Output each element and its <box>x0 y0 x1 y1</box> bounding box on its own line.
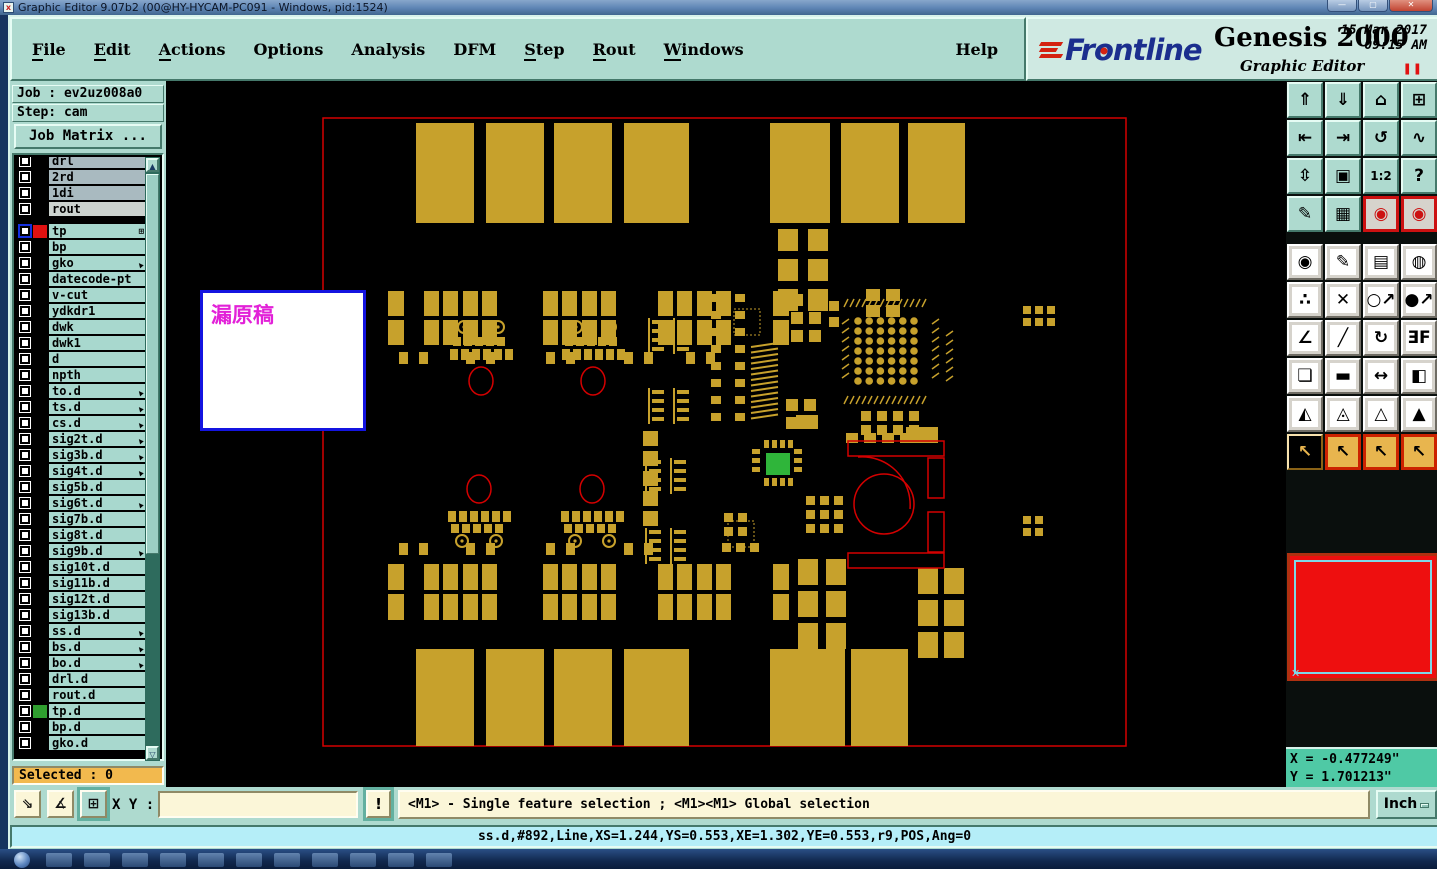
layer-visibility-checkbox[interactable] <box>20 658 30 668</box>
layer-color-swatch[interactable] <box>33 241 47 254</box>
layer-name[interactable]: sig2t.d▲ <box>49 432 147 447</box>
job-panel: Job : ev2uz008a0 Step: cam Job Matrix ..… <box>10 81 166 787</box>
layer-row-ydkdr1[interactable]: ydkdr1 <box>16 303 147 319</box>
select-frame-button[interactable]: ↖ <box>1325 434 1361 470</box>
layer-name[interactable]: ts.d▲ <box>49 400 147 415</box>
mirror-feature-button[interactable]: ƎF <box>1401 320 1437 356</box>
layer-visibility-checkbox[interactable] <box>20 354 30 364</box>
overview-window[interactable]: ✕ <box>1287 553 1437 681</box>
layer-name[interactable]: sig9b.d▲ <box>49 544 147 559</box>
layer-name[interactable]: dwk <box>49 320 147 335</box>
split-window-xy-button[interactable]: ⊞ <box>1401 82 1437 118</box>
resize-window-button[interactable]: ⇘ <box>14 790 41 818</box>
layer-row-sig12t.d[interactable]: sig12t.d <box>16 591 147 607</box>
layer-visibility-checkbox[interactable] <box>20 722 30 732</box>
layer-color-swatch[interactable] <box>33 529 47 542</box>
layer-row-dwk[interactable]: dwk <box>16 319 147 335</box>
selected-count: Selected : 0 <box>12 766 164 785</box>
zoom-out-button[interactable]: ⇓ <box>1325 82 1361 118</box>
layer-row-ts.d[interactable]: ts.d▲ <box>16 399 147 415</box>
brand-panel: Frontline Genesis 2000 Graphic Editor 15… <box>1026 17 1437 81</box>
select-single-button[interactable]: ↖ <box>1287 434 1323 470</box>
select-dashed-icon: ◍ <box>1406 249 1432 275</box>
measure-ruler-icon: ▤ <box>1368 249 1394 275</box>
scroll-up-icon[interactable]: ▲ <box>146 158 159 172</box>
layer-visibility-checkbox[interactable] <box>20 466 30 476</box>
layer-visibility-checkbox[interactable] <box>20 322 30 332</box>
mirror-feature-icon: ƎF <box>1406 325 1432 351</box>
layer-row-gko.d[interactable]: gko.d <box>16 735 147 751</box>
arc-mode-1-button[interactable]: ◭ <box>1287 396 1323 432</box>
command-bar: ⇘∡⊞ X Y : ! <M1> - Single feature select… <box>10 787 1437 823</box>
layer-row-2rd[interactable]: 2rd <box>16 169 147 185</box>
scale-1-2-button[interactable]: 1:2 <box>1363 158 1399 194</box>
option-menu-icon <box>1420 803 1429 808</box>
datetime-display: 15 Mar 201709:15 AM <box>1341 23 1427 53</box>
layer-color-swatch[interactable] <box>33 369 47 382</box>
layer-visibility-checkbox[interactable] <box>20 562 30 572</box>
layer-visibility-checkbox[interactable] <box>20 370 30 380</box>
layer-name[interactable]: npth <box>49 368 147 383</box>
layer-color-swatch[interactable] <box>33 433 47 446</box>
netlist-compare-b-button[interactable]: ◉ <box>1401 196 1437 232</box>
layer-color-swatch[interactable] <box>33 401 47 414</box>
layer-name[interactable]: tp⊞ <box>49 224 147 239</box>
layer-color-swatch[interactable] <box>33 157 47 168</box>
layer-color-swatch[interactable] <box>33 481 47 494</box>
layer-row-sig8t.d[interactable]: sig8t.d <box>16 527 147 543</box>
layer-row-sig3b.d[interactable]: sig3b.d▲ <box>16 447 147 463</box>
menu-edit[interactable]: Edit <box>94 40 131 59</box>
arc-mode-4-icon: ▲ <box>1406 401 1432 427</box>
layer-color-swatch[interactable] <box>33 449 47 462</box>
layer-visibility-checkbox[interactable] <box>20 706 30 716</box>
layer-visibility-checkbox[interactable] <box>20 226 30 236</box>
layer-name[interactable]: sig13b.d <box>49 608 147 623</box>
layer-name[interactable]: gko.d <box>49 736 147 751</box>
slope-line-button[interactable]: ╱ <box>1325 320 1361 356</box>
taskbar-app-icon[interactable] <box>274 853 300 867</box>
arc-mode-2-icon: ◬ <box>1330 401 1356 427</box>
menu-step[interactable]: Step <box>524 40 564 59</box>
layer-name[interactable]: rout <box>49 202 147 217</box>
scroll-thumb[interactable] <box>146 174 159 554</box>
close-button[interactable]: ✕ <box>1389 0 1433 12</box>
layer-color-swatch[interactable] <box>33 609 47 622</box>
taskbar-app-icon[interactable] <box>160 853 186 867</box>
layer-name[interactable]: drl.d <box>49 672 147 687</box>
zoom-in-button[interactable]: ⇑ <box>1287 82 1323 118</box>
overview-cursor-icon: ✕ <box>1291 667 1300 680</box>
layer-grid-marker-icon: ⊞ <box>139 225 144 239</box>
layer-name[interactable]: bp.d <box>49 720 147 735</box>
layer-name[interactable]: gko▲ <box>49 256 147 271</box>
arc-mode-3-button[interactable]: △ <box>1363 396 1399 432</box>
note-box: 漏原稿 <box>200 290 366 431</box>
copy-to-layer-icon: ❏ <box>1292 363 1318 389</box>
rotate-feature-button[interactable]: ↻ <box>1363 320 1399 356</box>
angle-measure-button[interactable]: ∠ <box>1287 320 1323 356</box>
menu-file[interactable]: File <box>32 40 66 59</box>
layer-name[interactable]: drl <box>49 157 147 169</box>
layer-color-swatch[interactable] <box>33 737 47 750</box>
layer-color-swatch[interactable] <box>33 641 47 654</box>
brand-name: Frontline <box>1065 33 1202 67</box>
pan-right-button[interactable]: ⇥ <box>1325 120 1361 156</box>
slope-line-icon: ╱ <box>1330 325 1356 351</box>
job-name: Job : ev2uz008a0 <box>12 85 164 103</box>
windows-taskbar[interactable] <box>0 849 1437 869</box>
arc-mode-1-icon: ◭ <box>1292 401 1318 427</box>
feature-status-text: ss.d,#892,Line,XS=1.244,YS=0.553,XE=1.30… <box>478 829 971 844</box>
menu-rout[interactable]: Rout <box>593 40 636 59</box>
layer-name[interactable]: bs.d▲ <box>49 640 147 655</box>
coordinate-readout: X = -0.477249" Y = 1.701213" <box>1286 747 1437 787</box>
overview-frame <box>1294 560 1432 674</box>
layer-visibility-checkbox[interactable] <box>20 594 30 604</box>
swap-small-button[interactable]: ○↗ <box>1363 282 1399 318</box>
pause-indicator-icon: ❚❚ <box>1403 62 1423 75</box>
help-context-button[interactable]: ? <box>1401 158 1437 194</box>
minimize-button[interactable]: — <box>1327 0 1357 12</box>
layer-row-sig7b.d[interactable]: sig7b.d <box>16 511 147 527</box>
layer-name[interactable]: tp.d <box>49 704 147 719</box>
layer-row-dwk1[interactable]: dwk1 <box>16 335 147 351</box>
delete-feature-button[interactable]: ✕ <box>1325 282 1361 318</box>
taskbar-app-icon[interactable] <box>84 853 110 867</box>
angle-measure-icon: ∠ <box>1292 325 1318 351</box>
readout-y: Y = 1.701213" <box>1290 769 1437 787</box>
pan-left-button[interactable]: ⇤ <box>1287 120 1323 156</box>
layer-color-swatch[interactable] <box>33 561 47 574</box>
job-matrix-button[interactable]: Job Matrix ... <box>14 124 162 149</box>
layer-visibility-checkbox[interactable] <box>20 450 30 460</box>
layer-row-1di[interactable]: 1di <box>16 185 147 201</box>
layer-name[interactable]: sig6t.d▲ <box>49 496 147 511</box>
previous-view-button[interactable]: ↺ <box>1363 120 1399 156</box>
reshape-feature-icon: ✎ <box>1330 249 1356 275</box>
layer-visibility-checkbox[interactable] <box>20 626 30 636</box>
rotate-feature-icon: ↻ <box>1368 325 1394 351</box>
readout-x: X = -0.477249" <box>1290 751 1437 769</box>
layer-row-bs.d[interactable]: bs.d▲ <box>16 639 147 655</box>
taskbar-app-icon[interactable] <box>198 853 224 867</box>
swap-large-button[interactable]: ●↗ <box>1401 282 1437 318</box>
layer-color-swatch[interactable] <box>33 225 47 238</box>
status-bar: ss.d,#892,Line,XS=1.244,YS=0.553,XE=1.30… <box>10 825 1437 848</box>
toolbar-panel: ⇑⇓⌂⊞⇤⇥↺∿⇳▣1:2?✎▦◉◉◉✎▤◍∴✕○↗●↗∠╱↻ƎF❏▬↔◧◭◬△… <box>1286 81 1437 787</box>
line-segment-icon: ▬ <box>1330 363 1356 389</box>
layer-color-swatch[interactable] <box>33 513 47 526</box>
select-net-button[interactable]: ↖ <box>1401 434 1437 470</box>
layer-visibility-checkbox[interactable] <box>20 338 30 348</box>
taskbar-app-icon[interactable] <box>350 853 376 867</box>
resize-horizontal-button[interactable]: ↔ <box>1363 358 1399 394</box>
xy-label: X Y : <box>112 797 154 813</box>
layer-color-swatch[interactable] <box>33 721 47 734</box>
layer-name[interactable]: cs.d▲ <box>49 416 147 431</box>
shapes-boolean-icon: ◧ <box>1406 363 1432 389</box>
layer-name[interactable]: v-cut <box>49 288 147 303</box>
layer-row-rout.d[interactable]: rout.d <box>16 687 147 703</box>
netlist-compare-a-button[interactable]: ◉ <box>1363 196 1399 232</box>
layer-visibility-checkbox[interactable] <box>20 204 30 214</box>
shapes-boolean-button[interactable]: ◧ <box>1401 358 1437 394</box>
layer-name[interactable]: sig7b.d <box>49 512 147 527</box>
layer-visibility-checkbox[interactable] <box>20 610 30 620</box>
units-dropdown[interactable]: Inch <box>1376 790 1437 819</box>
layer-color-swatch[interactable] <box>33 497 47 510</box>
grid-snap-button[interactable]: ⊞ <box>80 790 107 818</box>
layer-name[interactable]: sig4t.d▲ <box>49 464 147 479</box>
net-endpoints-button[interactable]: ∴ <box>1287 282 1323 318</box>
layer-row-to.d[interactable]: to.d▲ <box>16 383 147 399</box>
taskbar-app-icon[interactable] <box>46 853 72 867</box>
layer-name[interactable]: ss.d▲ <box>49 624 147 639</box>
menu-actions[interactable]: Actions <box>159 40 226 59</box>
maximize-button[interactable]: ▢ <box>1358 0 1388 12</box>
layer-visibility-checkbox[interactable] <box>20 498 30 508</box>
resize-horizontal-icon: ↔ <box>1368 363 1394 389</box>
alert-button[interactable]: ! <box>366 790 391 818</box>
layer-name[interactable]: sig10t.d <box>49 560 147 575</box>
layer-color-swatch[interactable] <box>33 187 47 200</box>
layer-name[interactable]: 1di <box>49 186 147 201</box>
layer-color-swatch[interactable] <box>33 305 47 318</box>
move-feature-icon: ◉ <box>1292 249 1318 275</box>
layer-color-swatch[interactable] <box>33 417 47 430</box>
layer-color-swatch[interactable] <box>33 321 47 334</box>
layer-visibility-checkbox[interactable] <box>20 578 30 588</box>
home-view-button[interactable]: ⌂ <box>1363 82 1399 118</box>
select-dashed-button[interactable]: ◍ <box>1401 244 1437 280</box>
menu-analysis[interactable]: Analysis <box>351 40 425 59</box>
copy-to-layer-button[interactable]: ❏ <box>1287 358 1323 394</box>
menu-windows[interactable]: Windows <box>664 40 744 59</box>
product-subtitle: Graphic Editor <box>1240 57 1364 75</box>
layer-visibility-checkbox[interactable] <box>20 434 30 444</box>
layer-row-drl[interactable]: drl <box>16 157 147 169</box>
layer-color-swatch[interactable] <box>33 673 47 686</box>
taskbar-app-icon[interactable] <box>236 853 262 867</box>
layer-row-tp.d[interactable]: tp.d <box>16 703 147 719</box>
delete-feature-icon: ✕ <box>1330 287 1356 313</box>
layer-name[interactable]: to.d▲ <box>49 384 147 399</box>
logo-stripes-icon <box>1040 40 1062 60</box>
layer-visibility-checkbox[interactable] <box>20 258 30 268</box>
note-text: 漏原稿 <box>211 303 274 327</box>
layer-row-sig9b.d[interactable]: sig9b.d▲ <box>16 543 147 559</box>
layer-visibility-checkbox[interactable] <box>20 172 30 182</box>
layer-visibility-checkbox[interactable] <box>20 674 30 684</box>
layer-name[interactable]: sig11b.d <box>49 576 147 591</box>
layer-name[interactable]: sig5b.d <box>49 480 147 495</box>
layer-visibility-checkbox[interactable] <box>20 157 30 166</box>
taskbar-app-icon[interactable] <box>122 853 148 867</box>
select-polygon-button[interactable]: ↖ <box>1363 434 1399 470</box>
hint-message: <M1> - Single feature selection ; <M1><M… <box>398 790 1370 819</box>
layer-visibility-checkbox[interactable] <box>20 306 30 316</box>
start-orb-icon[interactable] <box>14 852 30 868</box>
layer-row-gko[interactable]: gko▲ <box>16 255 147 271</box>
layer-color-swatch[interactable] <box>33 657 47 670</box>
layer-visibility-checkbox[interactable] <box>20 690 30 700</box>
layer-visibility-checkbox[interactable] <box>20 290 30 300</box>
taskbar-app-icon[interactable] <box>388 853 414 867</box>
layer-color-swatch[interactable] <box>33 577 47 590</box>
arc-mode-4-button[interactable]: ▲ <box>1401 396 1437 432</box>
xy-input[interactable] <box>158 791 358 818</box>
layer-color-swatch[interactable] <box>33 273 47 286</box>
layer-row-v-cut[interactable]: v-cut <box>16 287 147 303</box>
layer-visibility-checkbox[interactable] <box>20 738 30 748</box>
zoom-fit-button[interactable]: ⇳ <box>1287 158 1323 194</box>
menu-options[interactable]: Options <box>254 40 324 59</box>
layer-row-sig11b.d[interactable]: sig11b.d <box>16 575 147 591</box>
serpentine-redraw-button[interactable]: ∿ <box>1401 120 1437 156</box>
net-endpoints-icon: ∴ <box>1292 287 1318 313</box>
layer-visibility-checkbox[interactable] <box>20 274 30 284</box>
zoom-center-button[interactable]: ▣ <box>1325 158 1361 194</box>
layer-name[interactable]: datecode-pt <box>49 272 147 287</box>
layer-row-sig5b.d[interactable]: sig5b.d <box>16 479 147 495</box>
menu-bar: FileEditActionsOptionsAnalysisDFMStepRou… <box>10 17 1026 81</box>
layer-row-bp[interactable]: bp <box>16 239 147 255</box>
layer-row-bo.d[interactable]: bo.d▲ <box>16 655 147 671</box>
window-titlebar: x Graphic Editor 9.07b2 (00@HY-HYCAM-PC0… <box>0 0 1437 15</box>
layer-row-bp.d[interactable]: bp.d <box>16 719 147 735</box>
layer-row-drl.d[interactable]: drl.d <box>16 671 147 687</box>
layer-name[interactable]: sig12t.d <box>49 592 147 607</box>
arc-mode-3-icon: △ <box>1368 401 1394 427</box>
layer-visibility-checkbox[interactable] <box>20 402 30 412</box>
layer-row-ss.d[interactable]: ss.d▲ <box>16 623 147 639</box>
layer-color-swatch[interactable] <box>33 705 47 718</box>
layer-row-sig6t.d[interactable]: sig6t.d▲ <box>16 495 147 511</box>
layer-color-swatch[interactable] <box>33 203 47 216</box>
layer-visibility-checkbox[interactable] <box>20 482 30 492</box>
layer-visibility-checkbox[interactable] <box>20 418 30 428</box>
layer-color-swatch[interactable] <box>33 545 47 558</box>
layer-visibility-checkbox[interactable] <box>20 386 30 396</box>
move-feature-button[interactable]: ◉ <box>1287 244 1323 280</box>
reshape-feature-button[interactable]: ✎ <box>1325 244 1361 280</box>
layer-color-swatch[interactable] <box>33 337 47 350</box>
setup-tools-button[interactable]: ✎ <box>1287 196 1323 232</box>
layer-row-tp[interactable]: tp⊞ <box>16 223 147 239</box>
layer-row-sig2t.d[interactable]: sig2t.d▲ <box>16 431 147 447</box>
layer-scrollbar[interactable]: ▲ ▽ <box>145 157 160 761</box>
layer-color-swatch[interactable] <box>33 289 47 302</box>
layer-color-swatch[interactable] <box>33 625 47 638</box>
swap-small-icon: ○↗ <box>1368 287 1394 313</box>
layer-color-swatch[interactable] <box>33 171 47 184</box>
layer-name[interactable]: bp <box>49 240 147 255</box>
layer-row-rout[interactable]: rout <box>16 201 147 217</box>
swap-large-icon: ●↗ <box>1406 287 1432 313</box>
layer-color-swatch[interactable] <box>33 465 47 478</box>
layer-color-swatch[interactable] <box>33 353 47 366</box>
layer-name[interactable]: bo.d▲ <box>49 656 147 671</box>
application-window: FileEditActionsOptionsAnalysisDFMStepRou… <box>8 15 1437 849</box>
layer-color-swatch[interactable] <box>33 257 47 270</box>
layer-visibility-checkbox[interactable] <box>20 188 30 198</box>
layer-row-cs.d[interactable]: cs.d▲ <box>16 415 147 431</box>
menu-dfm[interactable]: DFM <box>453 40 496 59</box>
layer-name[interactable]: rout.d <box>49 688 147 703</box>
layer-visibility-checkbox[interactable] <box>20 642 30 652</box>
layer-row-npth[interactable]: npth <box>16 367 147 383</box>
taskbar-app-icon[interactable] <box>312 853 338 867</box>
pcb-canvas[interactable]: 漏原稿 <box>166 81 1286 787</box>
layer-name[interactable]: ydkdr1 <box>49 304 147 319</box>
layer-row-sig4t.d[interactable]: sig4t.d▲ <box>16 463 147 479</box>
layer-name[interactable]: 2rd <box>49 170 147 185</box>
grid-toggle-button[interactable]: ▦ <box>1325 196 1361 232</box>
layer-name[interactable]: sig8t.d <box>49 528 147 543</box>
layer-name[interactable]: sig3b.d▲ <box>49 448 147 463</box>
line-segment-button[interactable]: ▬ <box>1325 358 1361 394</box>
layer-row-d[interactable]: d <box>16 351 147 367</box>
layer-row-datecode-pt[interactable]: datecode-pt <box>16 271 147 287</box>
frontline-logo: Frontline <box>1040 33 1202 67</box>
layer-row-sig13b.d[interactable]: sig13b.d <box>16 607 147 623</box>
layer-list: drl2rd1dirouttp⊞bpgko▲datecode-ptv-cutyd… <box>12 153 164 761</box>
taskbar-app-icon[interactable] <box>426 853 452 867</box>
layer-color-swatch[interactable] <box>33 385 47 398</box>
measure-ruler-button[interactable]: ▤ <box>1363 244 1399 280</box>
app-icon: x <box>3 2 14 13</box>
layer-name[interactable]: d <box>49 352 147 367</box>
step-name: Step: cam <box>12 104 164 122</box>
pcb-graphics <box>166 81 1286 787</box>
scroll-down-icon[interactable]: ▽ <box>146 746 159 760</box>
menu-help[interactable]: Help <box>955 40 998 59</box>
layer-visibility-checkbox[interactable] <box>20 530 30 540</box>
layer-visibility-checkbox[interactable] <box>20 546 30 556</box>
layer-name[interactable]: dwk1 <box>49 336 147 351</box>
arc-mode-2-button[interactable]: ◬ <box>1325 396 1361 432</box>
window-title: Graphic Editor 9.07b2 (00@HY-HYCAM-PC091… <box>18 0 388 15</box>
layer-visibility-checkbox[interactable] <box>20 514 30 524</box>
layer-row-sig10t.d[interactable]: sig10t.d <box>16 559 147 575</box>
layer-color-swatch[interactable] <box>33 689 47 702</box>
layer-color-swatch[interactable] <box>33 593 47 606</box>
snap-angle-button[interactable]: ∡ <box>47 790 74 818</box>
layer-visibility-checkbox[interactable] <box>20 242 30 252</box>
